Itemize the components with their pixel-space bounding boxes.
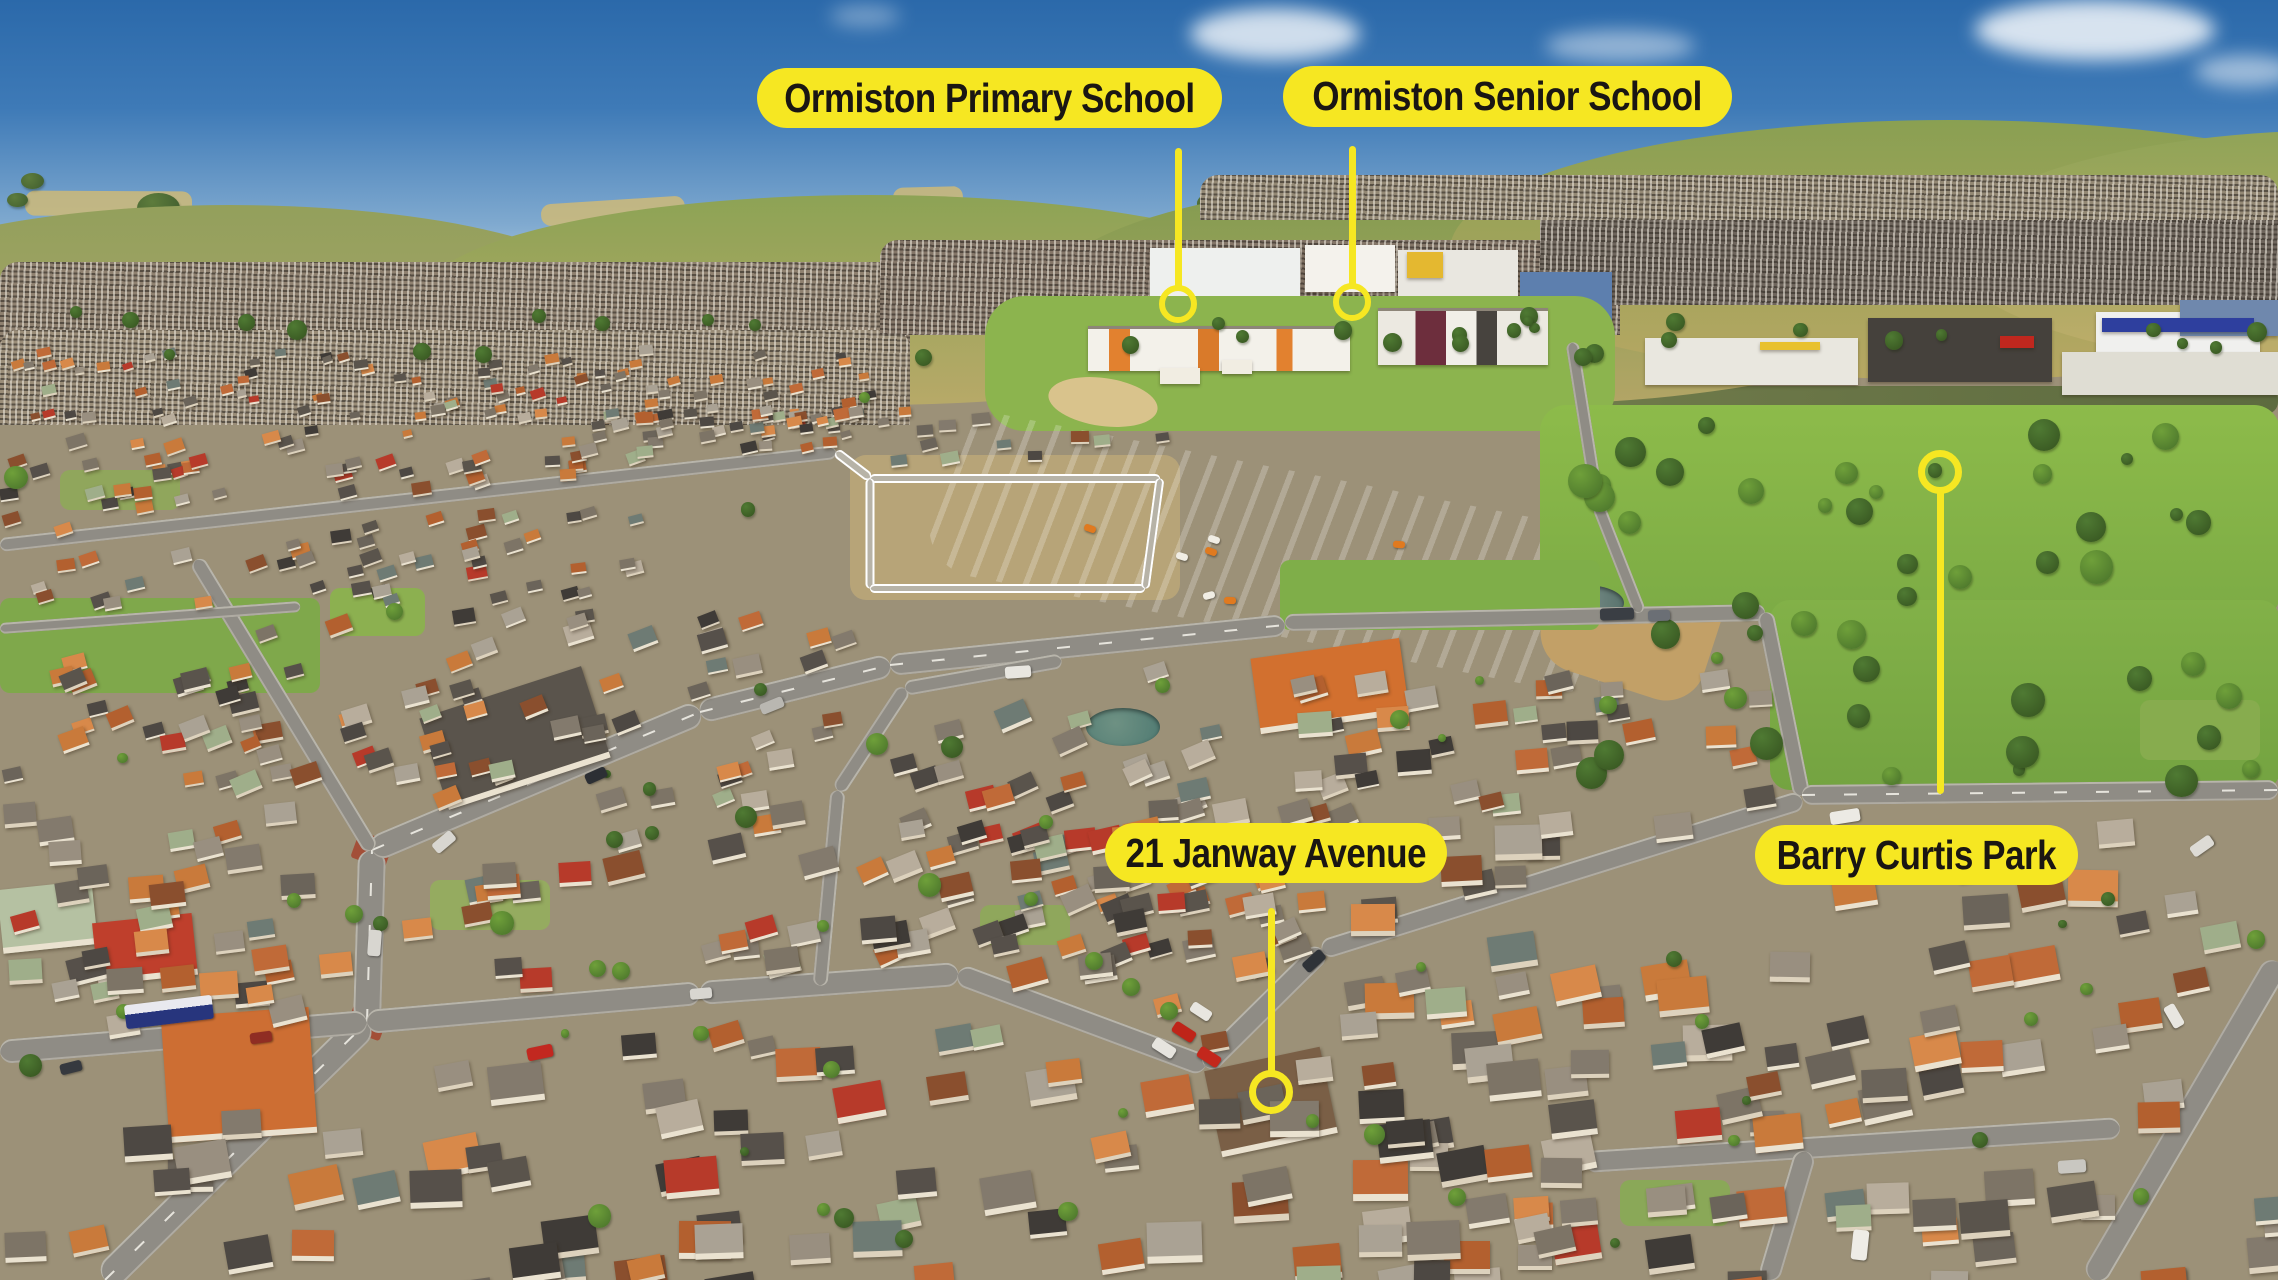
tree-dark (1742, 1096, 1750, 1104)
house (926, 1071, 969, 1106)
house (570, 562, 586, 575)
house (972, 412, 991, 427)
house (1495, 824, 1543, 860)
house (323, 1128, 363, 1159)
house (8, 958, 42, 984)
tree (1724, 687, 1747, 710)
tree-dark (1656, 458, 1684, 486)
house (899, 819, 926, 841)
tree-dark (1507, 323, 1522, 338)
tree (1695, 1014, 1710, 1029)
callout-21-janway-avenue: 21 Janway Avenue (1105, 823, 1447, 883)
house (483, 862, 518, 889)
retail-roof (2062, 352, 2278, 395)
house (495, 957, 523, 979)
tree-dark (2197, 725, 2221, 749)
house (410, 1169, 463, 1209)
tree (1599, 696, 1616, 713)
tree-dark (645, 826, 659, 840)
house (848, 406, 863, 419)
marker-ring-21-janway-avenue (1249, 1070, 1293, 1114)
callout-label: 21 Janway Avenue (1126, 830, 1427, 877)
tree-dark (1793, 323, 1808, 338)
tree-dark (1897, 554, 1918, 575)
tree-dark (735, 806, 757, 828)
house (1339, 1012, 1377, 1041)
road-centerline (1802, 789, 2278, 796)
car (2058, 1159, 2087, 1174)
house (896, 1167, 937, 1199)
cloud (830, 5, 900, 27)
house (1295, 1056, 1332, 1085)
tree-dark (1846, 498, 1873, 525)
cloud (1545, 30, 1695, 62)
house (713, 1110, 748, 1136)
house (1010, 858, 1042, 883)
retail-bigbox-dark (1868, 318, 2052, 382)
tree-dark (1574, 348, 1592, 366)
house (706, 403, 718, 413)
house (247, 918, 275, 941)
house (939, 419, 956, 432)
house (159, 964, 196, 993)
tree-dark (2011, 683, 2044, 716)
tree (2080, 550, 2114, 584)
tree-dark (2186, 510, 2210, 534)
tree-dark (1936, 329, 1947, 340)
house (979, 1169, 1037, 1216)
house (1071, 431, 1089, 444)
tree-dark (2165, 765, 2197, 797)
house (520, 968, 553, 994)
tree-dark (373, 916, 388, 931)
tree-dark (741, 502, 755, 516)
house (838, 357, 851, 368)
tree-dark (595, 316, 610, 331)
house (430, 404, 445, 417)
commercial-roof-yellow (1407, 252, 1443, 278)
tree-dark (475, 346, 492, 363)
house (890, 454, 907, 468)
tree (490, 911, 513, 934)
car (367, 930, 382, 957)
tree (1160, 1002, 1178, 1020)
house (1541, 1157, 1582, 1188)
house (487, 1061, 545, 1107)
house (1515, 748, 1549, 774)
house (1548, 1100, 1598, 1140)
house (488, 359, 502, 371)
cloud (1190, 8, 1360, 60)
marker-line-barry-curtis-park (1937, 490, 1944, 794)
marker-ring-ormiston-senior-school (1333, 283, 1371, 321)
house (225, 843, 264, 874)
house (478, 367, 491, 378)
house (214, 930, 245, 954)
road-segment (870, 474, 1160, 483)
tree (588, 1204, 611, 1227)
house (509, 1242, 561, 1280)
house (1513, 705, 1538, 724)
retail-sign-blue (2102, 318, 2254, 332)
marker-ring-ormiston-primary-school (1159, 285, 1197, 323)
car (1005, 665, 1032, 679)
tree (1306, 1114, 1320, 1128)
house (544, 353, 560, 366)
distant-suburb (0, 330, 910, 425)
house (621, 1032, 657, 1060)
house (638, 345, 653, 357)
tree-dark (895, 1230, 913, 1248)
house (275, 348, 287, 358)
house (2047, 1180, 2100, 1223)
callout-barry-curtis-park: Barry Curtis Park (1755, 825, 2078, 885)
house (1931, 1271, 1969, 1280)
tree-dark (2076, 512, 2106, 542)
house (1146, 1221, 1202, 1263)
tree-dark (287, 320, 307, 340)
tree (817, 1203, 830, 1216)
house (316, 393, 330, 405)
tree-dark (702, 314, 714, 326)
house (645, 385, 658, 396)
house (48, 840, 81, 866)
house (1414, 1260, 1450, 1280)
house (1487, 931, 1539, 973)
house (2137, 1101, 2180, 1133)
house (101, 496, 119, 511)
house (167, 829, 195, 852)
house (1645, 1234, 1696, 1275)
road-segment (866, 478, 875, 588)
house (1567, 720, 1599, 745)
tree-dark (413, 343, 430, 360)
house (221, 1109, 262, 1141)
tree (589, 960, 606, 977)
house (1353, 1160, 1409, 1202)
house (1494, 866, 1525, 889)
house (113, 483, 132, 498)
tree (1448, 1188, 1466, 1206)
callout-label: Ormiston Primary School (784, 75, 1194, 122)
tree (823, 1061, 840, 1078)
road-segment (870, 584, 1145, 593)
marker-line-ormiston-senior-school (1349, 146, 1356, 289)
house (1867, 1183, 1910, 1215)
callout-ormiston-senior-school: Ormiston Senior School (1283, 66, 1732, 127)
tree (287, 893, 302, 908)
callout-label: Ormiston Senior School (1313, 73, 1703, 120)
retail-sign-red (2000, 336, 2034, 348)
house (1157, 892, 1186, 914)
wetland-pond (1086, 708, 1160, 746)
house (556, 396, 568, 406)
tree-dark (532, 309, 546, 323)
tree (2242, 760, 2260, 778)
house (1653, 812, 1693, 843)
tree (2216, 683, 2242, 709)
house (353, 359, 368, 371)
house (916, 424, 933, 437)
house (636, 445, 654, 459)
house (693, 390, 707, 402)
house (1541, 723, 1567, 743)
tree-dark (2028, 419, 2060, 451)
house (1656, 975, 1709, 1016)
house (1487, 1058, 1543, 1102)
house (1962, 893, 2010, 930)
tree (1122, 978, 1140, 996)
construction-vehicle (1393, 541, 1405, 549)
house (148, 881, 185, 910)
house (558, 861, 592, 887)
house (238, 376, 250, 386)
school-outbuilding (1160, 368, 1200, 384)
tree (2181, 652, 2205, 676)
house (402, 917, 433, 941)
distant-suburb (1200, 175, 2278, 220)
house (1093, 434, 1110, 448)
house (153, 1168, 190, 1197)
tree-dark (1698, 417, 1715, 434)
house (130, 437, 145, 450)
house (1958, 1199, 2010, 1239)
house (133, 486, 153, 502)
house (1396, 748, 1432, 776)
tree-dark (2177, 338, 2188, 349)
house (636, 411, 654, 425)
house (1296, 1265, 1341, 1280)
house (913, 1262, 954, 1280)
tree (1155, 678, 1170, 693)
car (1850, 1229, 1869, 1261)
tree (612, 962, 630, 980)
school-outbuilding (1222, 360, 1252, 374)
tree-dark (2127, 666, 2152, 691)
house (1560, 1197, 1599, 1227)
tree (859, 392, 870, 403)
house (2246, 1234, 2278, 1275)
tree (1390, 710, 1409, 729)
tree (1618, 511, 1641, 534)
house (1406, 1220, 1461, 1261)
tree (1791, 611, 1816, 636)
house (133, 929, 169, 957)
house (799, 423, 814, 435)
house (545, 456, 560, 468)
house (319, 951, 353, 978)
tree-dark (164, 349, 175, 360)
house (1187, 929, 1212, 948)
tree-dark (1897, 587, 1917, 607)
house (194, 596, 212, 611)
house (1749, 690, 1773, 707)
tree (561, 1029, 569, 1037)
house (1861, 1068, 1908, 1103)
house (1386, 1119, 1425, 1149)
marker-line-ormiston-primary-school (1175, 148, 1182, 291)
tree-dark (606, 831, 623, 848)
house (250, 358, 261, 368)
house (1753, 1112, 1805, 1153)
house (56, 558, 76, 574)
callout-ormiston-primary-school: Ormiston Primary School (757, 68, 1222, 128)
house (1912, 1198, 1956, 1232)
tree (1818, 498, 1832, 512)
tree-dark (1732, 592, 1759, 619)
house (619, 557, 636, 571)
tree-dark (2036, 551, 2058, 573)
tree-dark (1747, 625, 1763, 641)
distant-suburb (1540, 205, 2278, 305)
house (858, 372, 869, 382)
tree (1364, 1124, 1385, 1145)
house (1960, 1040, 2004, 1073)
house (264, 801, 297, 826)
house (594, 369, 605, 378)
house (1582, 997, 1625, 1030)
retail-warehouse (1645, 338, 1858, 385)
house (1199, 1099, 1240, 1130)
house (96, 361, 111, 373)
tree (345, 905, 363, 923)
house (860, 916, 897, 945)
house (1706, 725, 1737, 748)
house (684, 409, 697, 420)
house (1539, 811, 1574, 839)
car (1600, 607, 1634, 620)
cloud (1975, 0, 2215, 60)
construction-vehicle (1224, 597, 1236, 605)
house (1769, 952, 1809, 982)
marker-line-21-janway-avenue (1268, 908, 1275, 1076)
tree (1728, 1135, 1740, 1147)
house (2164, 891, 2198, 919)
house (1028, 451, 1043, 462)
house (899, 407, 912, 418)
house (1351, 904, 1395, 937)
house (1361, 1062, 1396, 1090)
house (4, 1231, 46, 1263)
house (663, 1155, 719, 1199)
car (690, 987, 713, 1000)
tree (2080, 983, 2092, 995)
tree (1837, 620, 1866, 649)
tree-dark (1334, 321, 1353, 340)
house (1045, 1058, 1082, 1088)
house (1764, 1043, 1799, 1071)
house (76, 864, 108, 889)
tree-dark (1666, 313, 1684, 331)
tree-dark (1661, 332, 1677, 348)
house (823, 436, 838, 448)
tree-dark (1651, 619, 1681, 649)
house (789, 1233, 831, 1265)
house (1484, 1144, 1533, 1182)
house (452, 607, 477, 626)
house (562, 436, 576, 447)
house (605, 408, 619, 420)
tree-dark (2247, 322, 2267, 342)
house (1571, 1050, 1609, 1078)
house (349, 411, 361, 421)
tree-dark (19, 1054, 42, 1077)
house (1098, 1238, 1145, 1276)
house (997, 439, 1012, 451)
tree-dark (1615, 437, 1645, 467)
tree (1711, 652, 1723, 664)
house (393, 374, 406, 385)
house (560, 468, 576, 481)
tree-dark (2146, 323, 2161, 338)
tree-dark (1847, 704, 1871, 728)
house (411, 480, 432, 497)
house (2097, 819, 2136, 849)
marker-ring-barry-curtis-park (1918, 450, 1962, 494)
house (750, 422, 765, 435)
house (1358, 1089, 1404, 1124)
house (1404, 685, 1438, 712)
house (292, 1230, 334, 1261)
callout-label: Barry Curtis Park (1777, 832, 2056, 879)
house (1836, 1204, 1872, 1231)
tree (386, 603, 403, 620)
house (414, 411, 426, 421)
tree (2247, 930, 2265, 948)
tree-dark (238, 314, 255, 331)
aerial-photo: Ormiston Primary SchoolOrmiston Senior S… (0, 0, 2278, 1280)
tree (866, 733, 888, 755)
house (694, 1223, 743, 1260)
tree-dark (1853, 656, 1880, 683)
tree (1869, 485, 1883, 499)
house (123, 1125, 173, 1163)
house (3, 802, 37, 829)
tree-dark (1523, 316, 1533, 326)
house (1359, 1225, 1402, 1257)
tree (2133, 1188, 2150, 1205)
house (1425, 986, 1467, 1019)
house (1646, 1186, 1687, 1218)
house (1651, 1041, 1688, 1070)
car (1648, 610, 1670, 622)
house (1297, 711, 1332, 738)
house (1473, 700, 1509, 728)
tree (4, 466, 28, 490)
house (1294, 770, 1323, 792)
house (709, 374, 723, 386)
house (1297, 891, 1326, 914)
house (644, 398, 658, 410)
house (106, 967, 143, 996)
house (759, 440, 772, 451)
tree (2033, 464, 2052, 483)
house (82, 411, 97, 423)
house (2254, 1196, 2278, 1226)
retail-sign-yellow (1760, 342, 1820, 350)
house (1440, 856, 1482, 888)
tree (1475, 676, 1484, 685)
house (1465, 1193, 1510, 1229)
house (1674, 1107, 1721, 1144)
tree (1039, 815, 1053, 829)
house (763, 946, 800, 976)
house (535, 409, 548, 420)
tree-dark (1885, 331, 1903, 349)
tree (1085, 952, 1103, 970)
tree (1568, 464, 1602, 498)
house (659, 389, 671, 399)
